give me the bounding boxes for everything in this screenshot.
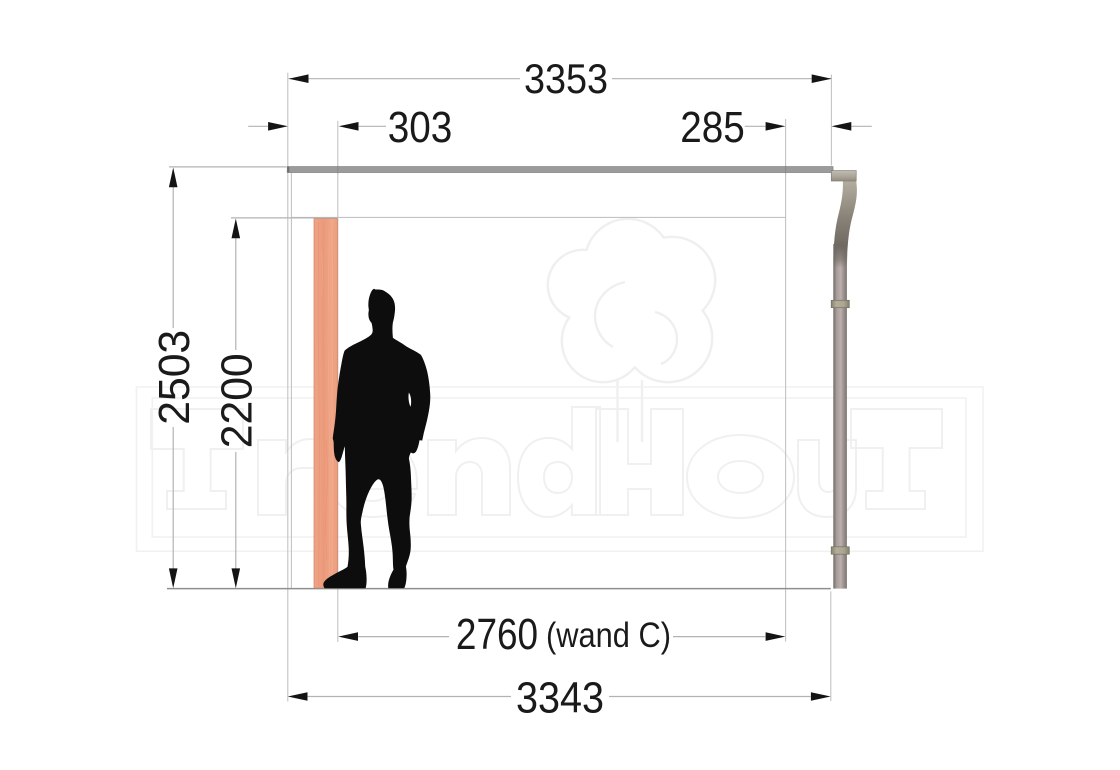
svg-text:(wand C): (wand C) xyxy=(546,615,671,654)
svg-text:2200: 2200 xyxy=(213,353,262,448)
svg-text:3343: 3343 xyxy=(516,672,604,721)
svg-text:285: 285 xyxy=(680,102,745,152)
svg-text:2503: 2503 xyxy=(150,330,199,425)
svg-text:2760: 2760 xyxy=(456,609,538,659)
svg-text:303: 303 xyxy=(388,102,453,152)
svg-text:3353: 3353 xyxy=(524,56,608,102)
